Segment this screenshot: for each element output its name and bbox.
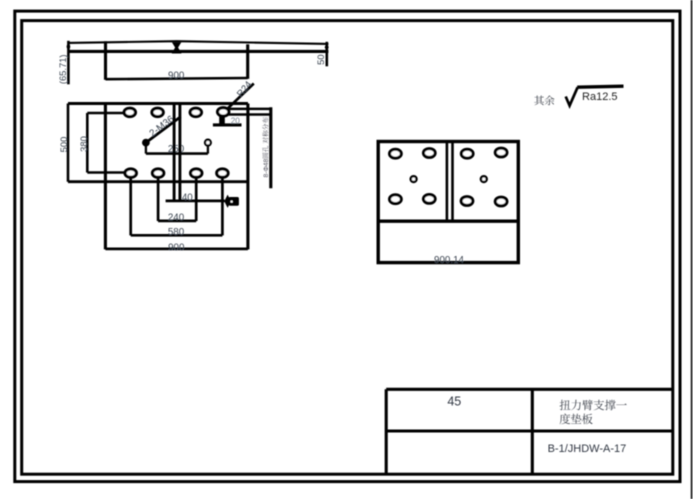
svg-text:R24: R24 xyxy=(234,79,253,99)
svg-text:50: 50 xyxy=(315,54,326,64)
svg-text:900: 900 xyxy=(168,71,185,82)
svg-text:500: 500 xyxy=(58,137,69,153)
svg-text:2-M36: 2-M36 xyxy=(148,114,177,140)
svg-text:900.14: 900.14 xyxy=(434,255,465,266)
svg-text:Ra12.5: Ra12.5 xyxy=(582,91,617,103)
svg-text:(65.71): (65.71) xyxy=(57,54,68,84)
svg-text:20: 20 xyxy=(231,116,241,125)
svg-text:580: 580 xyxy=(168,227,185,238)
svg-text:240: 240 xyxy=(168,212,185,223)
svg-text:40: 40 xyxy=(182,192,193,203)
svg-text:B-1/JHDW-A-17: B-1/JHDW-A-17 xyxy=(548,443,627,455)
svg-text:380: 380 xyxy=(78,136,89,152)
svg-text:900: 900 xyxy=(168,242,185,253)
svg-text:45: 45 xyxy=(447,394,461,408)
svg-text:8-Φ48: 8-Φ48 xyxy=(263,158,270,177)
